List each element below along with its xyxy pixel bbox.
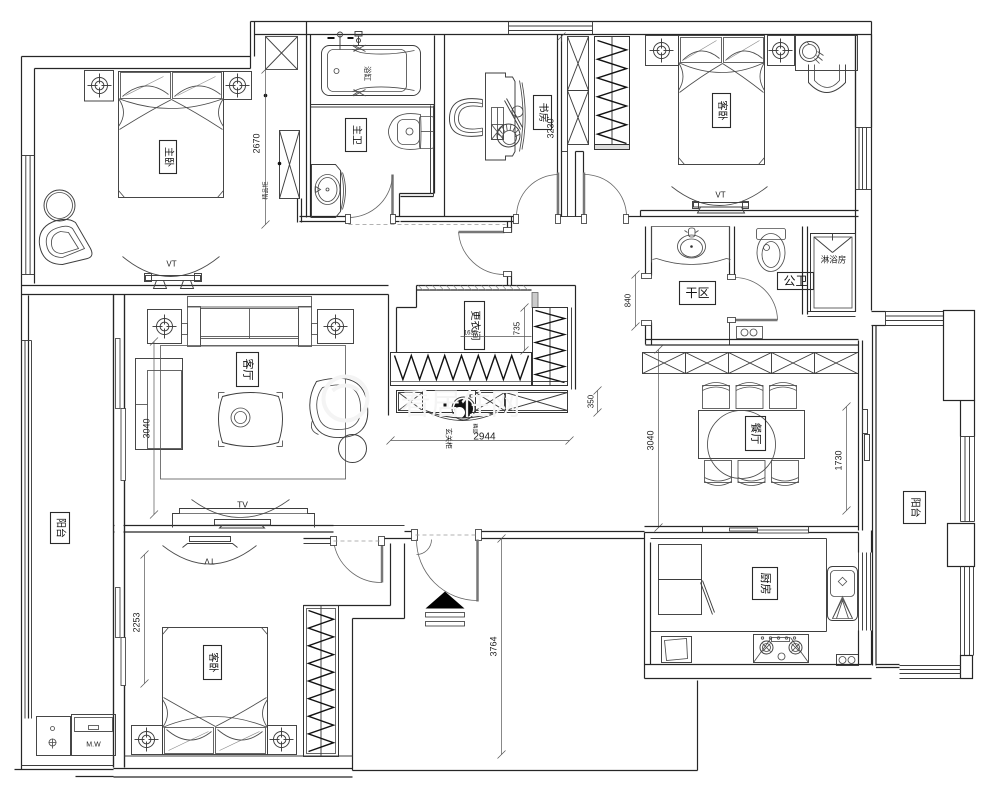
- svg-text:2944: 2944: [473, 432, 496, 443]
- svg-text:VT: VT: [166, 260, 176, 269]
- svg-text:客厅: 客厅: [242, 359, 256, 381]
- svg-text:公卫: 公卫: [783, 274, 807, 288]
- svg-text:阳台: 阳台: [909, 498, 922, 518]
- svg-text:厨房: 厨房: [759, 573, 772, 595]
- svg-text:3764: 3764: [489, 636, 499, 656]
- svg-text:客卧: 客卧: [207, 653, 220, 673]
- svg-text:VT: VT: [715, 191, 725, 200]
- svg-text:840: 840: [624, 293, 633, 307]
- svg-text:看居住网: 看居住网: [401, 389, 521, 422]
- svg-text:735: 735: [513, 321, 522, 335]
- svg-text:玄关柜: 玄关柜: [445, 428, 454, 449]
- svg-text:1635: 1635: [464, 331, 478, 337]
- svg-text:M.W: M.W: [86, 742, 101, 749]
- svg-text:TV: TV: [237, 500, 248, 510]
- svg-text:淋浴房: 淋浴房: [821, 255, 847, 265]
- svg-text:主卧: 主卧: [163, 147, 176, 167]
- svg-text:3230: 3230: [546, 118, 556, 138]
- svg-text:干区: 干区: [685, 286, 709, 300]
- svg-text:TV: TV: [204, 557, 215, 566]
- svg-text:350: 350: [587, 394, 596, 408]
- svg-text:客卧: 客卧: [716, 101, 729, 121]
- svg-text:3040: 3040: [646, 430, 656, 450]
- svg-text:2253: 2253: [132, 612, 142, 632]
- svg-text:2670: 2670: [252, 133, 262, 153]
- svg-text:1730: 1730: [834, 450, 844, 470]
- svg-text:餐厅: 餐厅: [750, 423, 764, 445]
- svg-text:阳台: 阳台: [55, 518, 68, 538]
- svg-text:浴缸: 浴缸: [363, 66, 373, 81]
- svg-text:3040: 3040: [142, 418, 152, 438]
- svg-text:主卫: 主卫: [351, 125, 363, 145]
